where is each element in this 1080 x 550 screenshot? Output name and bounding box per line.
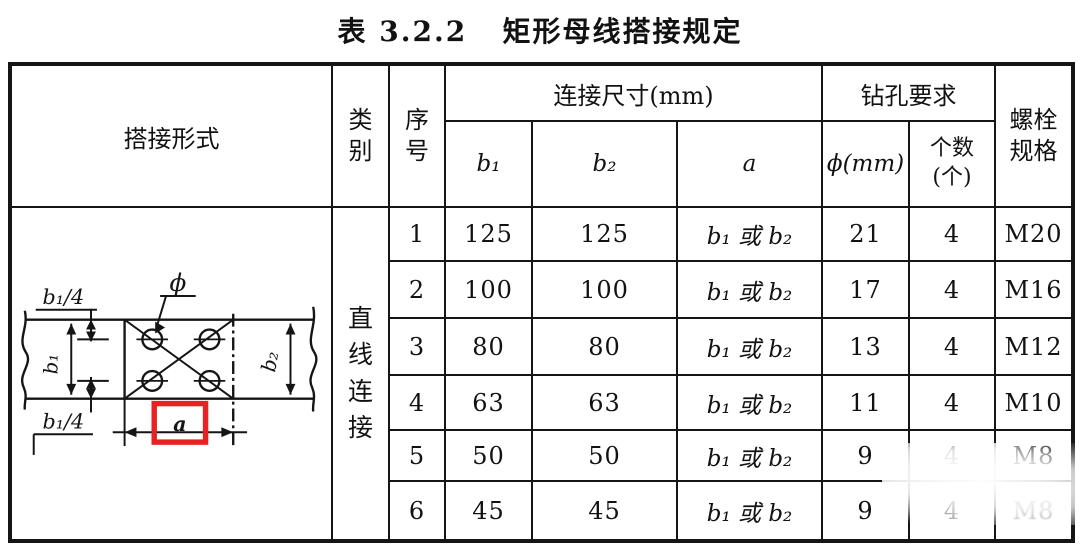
cell-bolt: M8	[995, 481, 1073, 541]
cell-b1: 63	[445, 375, 532, 430]
cell-b1: 45	[445, 481, 532, 541]
header-b1: b₁	[445, 121, 532, 207]
cell-count: 4	[909, 261, 995, 318]
cell-serial: 5	[389, 430, 445, 481]
cell-a: b₁ 或 b₂	[677, 430, 822, 481]
cell-count: 4	[909, 430, 995, 481]
cell-serial: 1	[389, 207, 445, 261]
category-cell: 直 线 连 接	[332, 207, 389, 541]
label-a: a	[173, 412, 186, 436]
cell-b1: 125	[445, 207, 532, 261]
cell-phi: 13	[822, 318, 909, 375]
cell-phi: 11	[822, 375, 909, 430]
cell-count: 4	[909, 481, 995, 541]
header-a: a	[677, 121, 822, 207]
arrowhead	[66, 324, 76, 335]
cell-b2: 80	[532, 318, 677, 375]
cell-a: b₁ 或 b₂	[677, 375, 822, 430]
cell-count: 4	[909, 207, 995, 261]
lap-joint-diagram-cell: b₁/4 b₁/4 b₁ b₂ ϕ a	[10, 207, 332, 541]
cell-bolt: M10	[995, 375, 1073, 430]
cell-count: 4	[909, 375, 995, 430]
break-mark-right	[311, 307, 317, 412]
table-title: 表 3.2.2 矩形母线搭接规定	[0, 10, 1080, 50]
cell-b2: 125	[532, 207, 677, 261]
header-b2: b₂	[532, 121, 677, 207]
cell-a: b₁ 或 b₂	[677, 481, 822, 541]
cell-b2: 50	[532, 430, 677, 481]
cell-b1: 80	[445, 318, 532, 375]
cell-phi: 9	[822, 481, 909, 541]
break-mark-left	[22, 311, 28, 410]
cell-b2: 45	[532, 481, 677, 541]
header-phi: ϕ(mm)	[822, 121, 909, 207]
header-count: 个数 (个)	[909, 121, 995, 207]
cell-phi: 21	[822, 207, 909, 261]
cell-a: b₁ 或 b₂	[677, 261, 822, 318]
arrowhead	[286, 324, 296, 335]
arrowhead	[86, 389, 96, 399]
label-b1-quarter-bottom: b₁/4	[42, 409, 84, 433]
label-b2: b₂	[257, 349, 283, 373]
cell-serial: 2	[389, 261, 445, 318]
cell-bolt: M8	[995, 430, 1073, 481]
cell-phi: 17	[822, 261, 909, 318]
cell-phi: 9	[822, 430, 909, 481]
arrowhead	[125, 427, 137, 437]
cell-bolt: M20	[995, 207, 1073, 261]
arrowhead	[221, 427, 233, 437]
cell-a: b₁ 或 b₂	[677, 207, 822, 261]
arrowhead	[86, 320, 96, 330]
header-connection-dims: 连接尺寸(mm)	[445, 64, 822, 121]
cell-serial: 4	[389, 375, 445, 430]
cell-b1: 100	[445, 261, 532, 318]
cell-serial: 3	[389, 318, 445, 375]
document-page: 表 3.2.2 矩形母线搭接规定 搭接形式 类 别 序 号 连接尺寸(mm) 钻…	[0, 0, 1080, 550]
cell-bolt: M12	[995, 318, 1073, 375]
cell-a: b₁ 或 b₂	[677, 318, 822, 375]
label-phi: ϕ	[169, 268, 186, 297]
label-b1-quarter-top: b₁/4	[42, 285, 84, 309]
header-drill-req: 钻孔要求	[822, 64, 995, 121]
arrowhead	[66, 384, 76, 395]
cell-serial: 6	[389, 481, 445, 541]
busbar-lap-table: 搭接形式 类 别 序 号 连接尺寸(mm) 钻孔要求 螺栓 规格 b₁ b₂ a…	[8, 62, 1075, 543]
header-category: 类 别	[332, 64, 389, 207]
cell-b2: 63	[532, 375, 677, 430]
header-lap-form: 搭接形式	[10, 64, 332, 207]
table-row: b₁/4 b₁/4 b₁ b₂ ϕ a 直 线 连 接 1 125 125 b₁…	[10, 207, 1073, 261]
header-bolt-spec: 螺栓 规格	[995, 64, 1073, 207]
cell-b1: 50	[445, 430, 532, 481]
cell-bolt: M16	[995, 261, 1073, 318]
header-row-group: 搭接形式 类 别 序 号 连接尺寸(mm) 钻孔要求 螺栓 规格	[10, 64, 1073, 121]
cell-count: 4	[909, 318, 995, 375]
header-serial: 序 号	[389, 64, 445, 207]
cell-b2: 100	[532, 261, 677, 318]
label-b1: b₁	[39, 354, 62, 375]
arrowhead	[286, 384, 296, 395]
lap-joint-diagram: b₁/4 b₁/4 b₁ b₂ ϕ a	[12, 208, 330, 536]
